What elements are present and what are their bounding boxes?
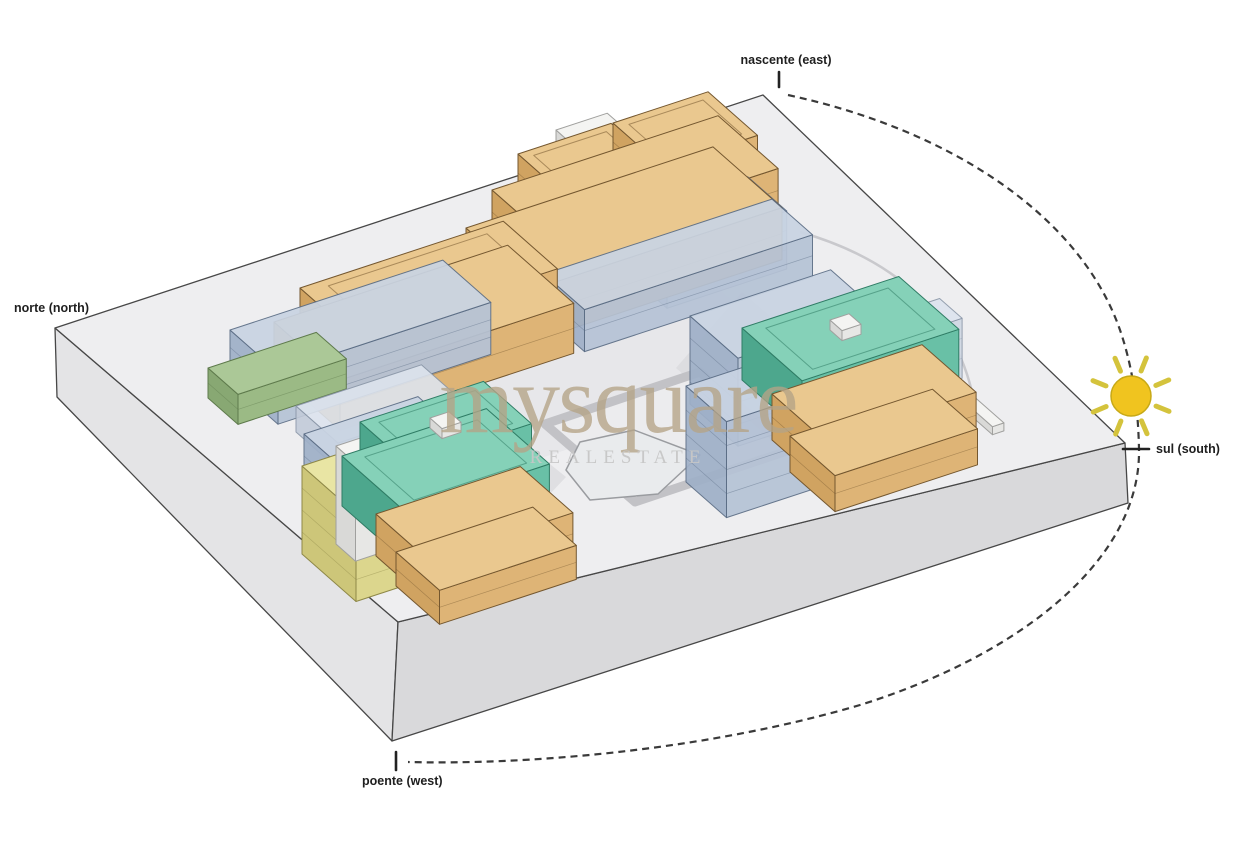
label-west: poente (west)	[362, 774, 443, 788]
watermark-tagline: REALESTATE	[530, 447, 707, 468]
watermark-brand: mysquare	[439, 346, 796, 453]
label-east: nascente (east)	[740, 53, 831, 67]
diagram-canvas: nascente (east) norte (north) sul (south…	[0, 0, 1236, 857]
label-north: norte (north)	[14, 301, 89, 315]
label-south: sul (south)	[1156, 442, 1220, 456]
sun-disc	[1111, 376, 1151, 416]
site-diagram: nascente (east) norte (north) sul (south…	[0, 0, 1236, 857]
watermark: mysquare REALESTATE	[439, 346, 796, 468]
